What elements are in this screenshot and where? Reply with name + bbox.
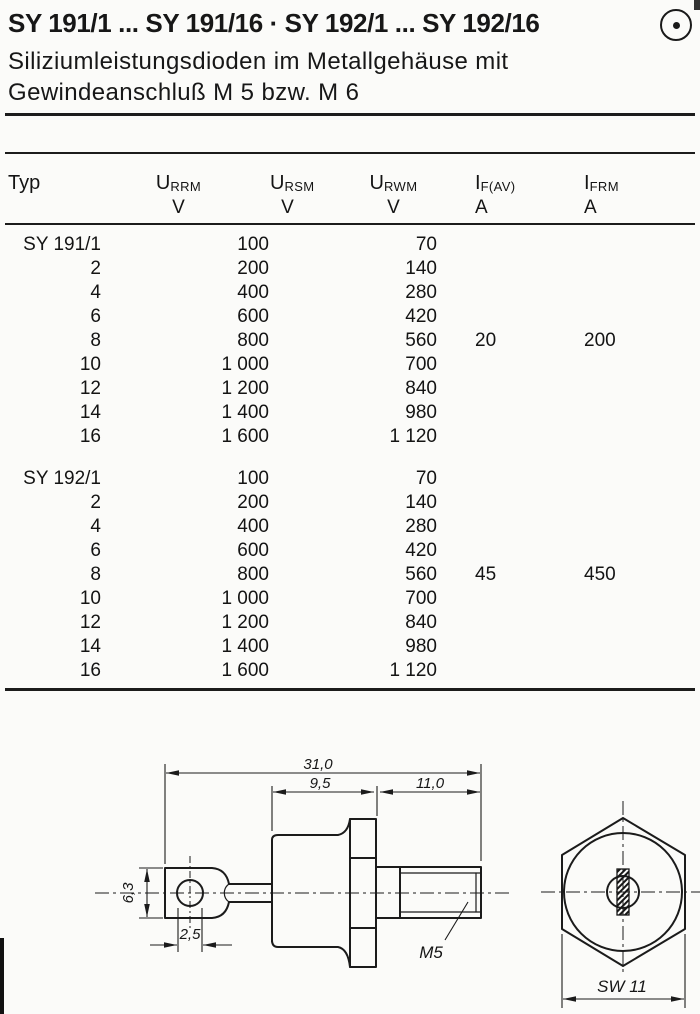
cell-urrm: 100 bbox=[105, 467, 269, 491]
unit-ursm: V bbox=[269, 196, 323, 224]
cell-typ: SY 192/1 bbox=[5, 467, 105, 491]
cell-typ: SY 191/1 bbox=[5, 233, 105, 257]
cell-urwm: 70 bbox=[323, 233, 437, 257]
cell-ifrm-group1: 200 bbox=[570, 233, 695, 449]
page-subtitle: Siliziumleistungsdioden im Metallgehäuse… bbox=[8, 46, 628, 108]
unit-urwm: V bbox=[323, 196, 437, 224]
col-urrm: URRM bbox=[105, 153, 269, 196]
unit-urrm: V bbox=[105, 196, 269, 224]
end-view-drawing: SW 11 bbox=[541, 801, 700, 1008]
dim-body-length: 9,5 bbox=[310, 775, 332, 792]
spacer-row bbox=[5, 449, 695, 467]
cell-urrm: 100 bbox=[105, 233, 269, 257]
cell-ifav-group2: 45 bbox=[437, 467, 570, 683]
wrench-size-label: SW 11 bbox=[597, 977, 647, 996]
datasheet-page: SY 191/1 ... SY 191/16 · SY 192/1 ... SY… bbox=[0, 0, 700, 1014]
col-ursm: URSM bbox=[269, 153, 323, 196]
cell-ifrm-group2: 450 bbox=[570, 467, 695, 683]
package-outline-drawing: 31,0 9,5 11,0 6,3 2,5 bbox=[0, 684, 700, 1014]
header-divider bbox=[5, 113, 695, 116]
subtitle-line-2: Gewindeanschluß M 5 bzw. M 6 bbox=[8, 77, 628, 108]
circled-dot-icon bbox=[660, 9, 692, 41]
col-urwm: URWM bbox=[323, 153, 437, 196]
col-typ: Typ bbox=[5, 153, 105, 196]
spacer-row bbox=[5, 224, 695, 233]
cell-ifav-group1: 20 bbox=[437, 233, 570, 449]
cell-urwm: 70 bbox=[323, 467, 437, 491]
side-view-drawing: 31,0 9,5 11,0 6,3 2,5 bbox=[95, 756, 512, 967]
col-ifav: IF(AV) bbox=[437, 153, 570, 196]
header-symbol-row: Typ URRM URSM URWM IF(AV) IFRM bbox=[5, 153, 695, 196]
dim-stud-length: 11,0 bbox=[416, 775, 445, 792]
page-title: SY 191/1 ... SY 191/16 · SY 192/1 ... SY… bbox=[8, 8, 648, 39]
unit-ifrm: A bbox=[570, 196, 695, 224]
header-unit-row: V V V A A bbox=[5, 196, 695, 224]
dim-hole: 2,5 bbox=[179, 926, 202, 943]
ratings-table: Typ URRM URSM URWM IF(AV) IFRM V V V A A… bbox=[5, 152, 695, 691]
thread-label: M5 bbox=[419, 943, 443, 962]
table-header: Typ URRM URSM URWM IF(AV) IFRM V V V A A bbox=[5, 153, 695, 224]
col-ifrm: IFRM bbox=[570, 153, 695, 196]
table-body: SY 191/1 100 70 20 200 2200140 4400280 6… bbox=[5, 224, 695, 690]
dim-overall-length: 31,0 bbox=[303, 756, 333, 773]
table-row: SY 192/1 100 70 45 450 bbox=[5, 467, 695, 491]
scan-artifact bbox=[0, 938, 4, 1014]
unit-ifav: A bbox=[437, 196, 570, 224]
scan-artifact bbox=[694, 0, 700, 10]
subtitle-line-1: Siliziumleistungsdioden im Metallgehäuse… bbox=[8, 46, 628, 77]
table-row: SY 191/1 100 70 20 200 bbox=[5, 233, 695, 257]
